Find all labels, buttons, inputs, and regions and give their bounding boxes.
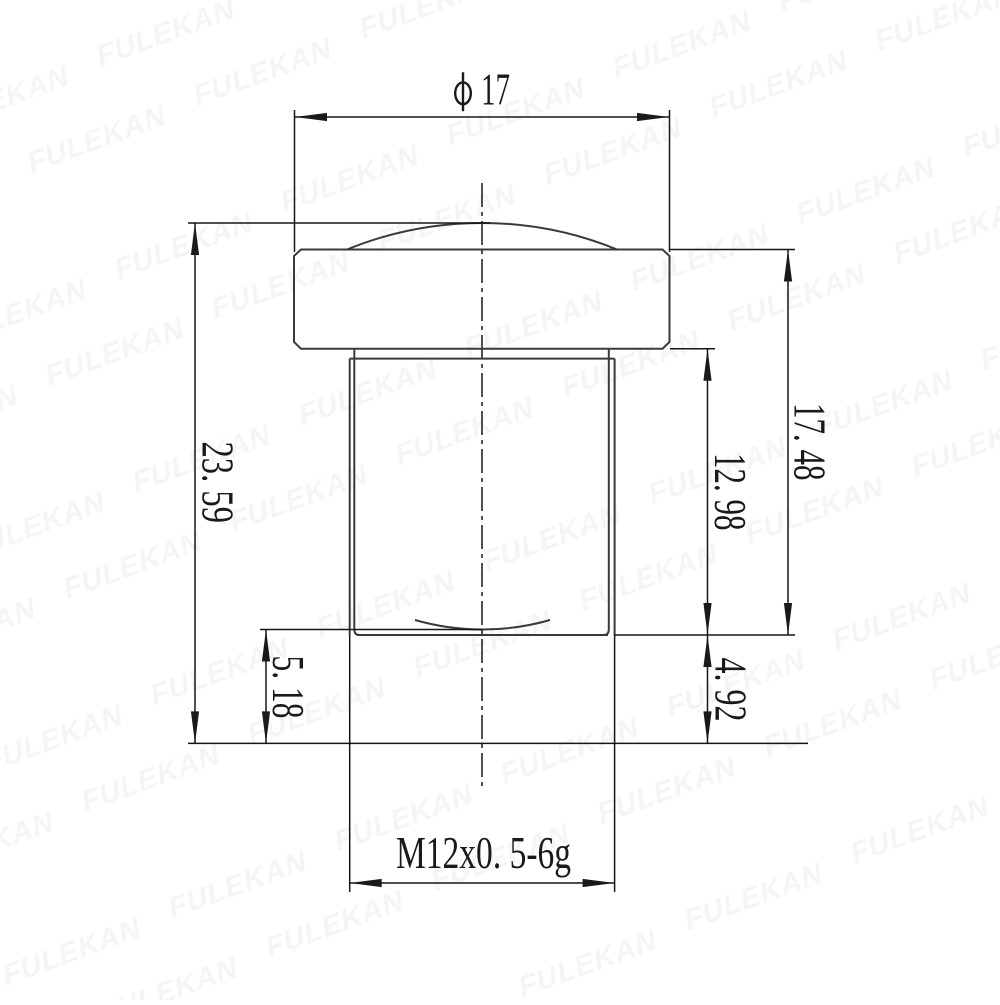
svg-text:17: 17 <box>481 63 510 114</box>
svg-text:12. 98: 12. 98 <box>705 453 756 531</box>
svg-text:5. 18: 5. 18 <box>263 656 314 719</box>
svg-text:4. 92: 4. 92 <box>705 658 756 722</box>
svg-text:M12x0. 5-6g: M12x0. 5-6g <box>396 827 571 878</box>
svg-text:17. 48: 17. 48 <box>785 403 836 481</box>
svg-text:23. 59: 23. 59 <box>193 442 244 524</box>
